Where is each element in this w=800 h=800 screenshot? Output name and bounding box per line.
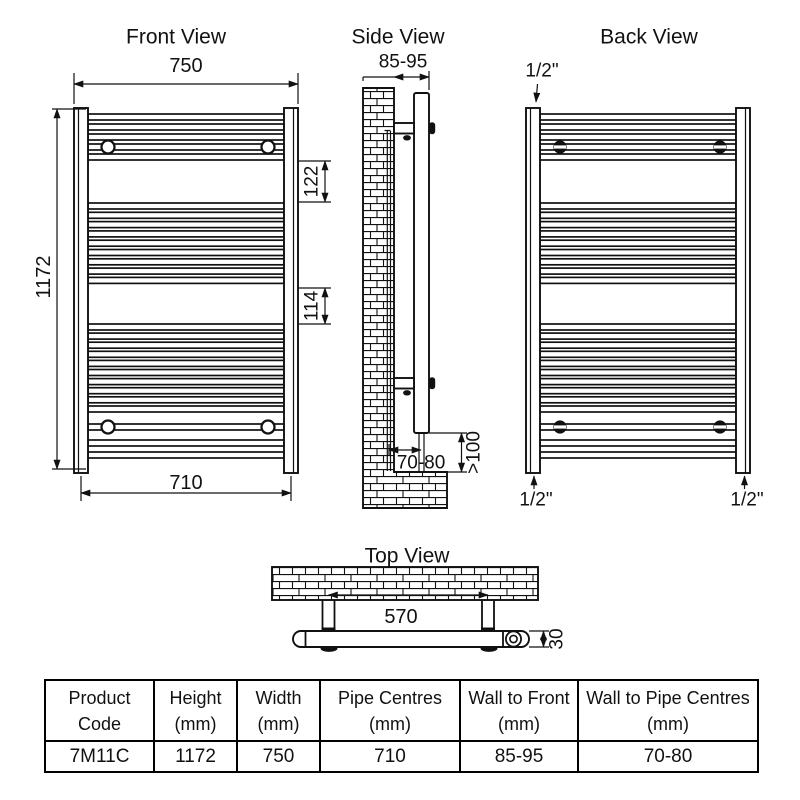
front-radiator-body [74, 108, 298, 473]
back-connection-bottom-right-label: 1/2" [730, 490, 763, 511]
cell-pipe-centres: 710 [320, 741, 460, 772]
technical-drawing-page: Front View 750 1172 122 114 7 [0, 0, 800, 800]
back-connection-bottom-left: 1/2" [519, 476, 552, 511]
spec-table: ProductCode Height(mm) Width(mm) Pipe Ce… [44, 679, 759, 773]
side-radiator-profile [414, 93, 429, 433]
header-width: Width(mm) [237, 680, 320, 741]
header-product-code: ProductCode [45, 680, 154, 741]
spec-table-header-row: ProductCode Height(mm) Width(mm) Pipe Ce… [45, 680, 758, 741]
bracket-centres-label: 570 [384, 606, 417, 628]
spec-table-data-row: 7M11C 1172 750 710 85-95 70-80 [45, 741, 758, 772]
top-view: Top View 570 30 [272, 545, 568, 652]
header-pipe-centres: Pipe Centres(mm) [320, 680, 460, 741]
back-radiator-body [526, 108, 750, 473]
front-upper-gap-label: 122 [302, 166, 323, 198]
radiator-drawing: Front View 750 1172 122 114 7 [0, 0, 800, 676]
front-upper-gap-dimension: 122 [298, 161, 331, 202]
front-view: Front View 750 1172 122 114 7 [33, 26, 331, 502]
top-radiator-tube [293, 631, 529, 647]
back-connection-top-left-label: 1/2" [525, 61, 558, 82]
back-view: Back View 1/2" 1/2" 1/2" [519, 26, 763, 511]
front-pipe-centres-label: 710 [169, 472, 202, 494]
cell-wall-to-front: 85-95 [460, 741, 578, 772]
cell-height: 1172 [154, 741, 237, 772]
back-connection-top-left: 1/2" [525, 61, 558, 103]
front-height-label: 1172 [33, 255, 55, 298]
cell-wall-to-pipe-centres: 70-80 [578, 741, 758, 772]
side-view: Side View 85-95 70-80 >100 [351, 26, 484, 509]
cell-width: 750 [237, 741, 320, 772]
front-width-label: 750 [169, 55, 202, 77]
top-view-title: Top View [365, 545, 451, 568]
back-connection-bottom-right: 1/2" [730, 476, 763, 511]
tube-depth-dimension: 30 [529, 628, 568, 649]
front-mount-hole [262, 141, 275, 154]
front-pipe-centres-dimension: 710 [81, 472, 291, 501]
header-height: Height(mm) [154, 680, 237, 741]
front-width-dimension: 750 [74, 55, 298, 104]
front-mount-hole [262, 421, 275, 434]
header-wall-to-pipe-centres: Wall to Pipe Centres(mm) [578, 680, 758, 741]
front-view-title: Front View [126, 26, 227, 49]
front-middle-gap-label: 114 [302, 290, 323, 321]
front-mount-hole [102, 421, 115, 434]
air-vent-plug-center [510, 635, 517, 642]
floor-clearance-label: >100 [464, 431, 485, 474]
wall-to-front-dimension: 85-95 [363, 52, 429, 91]
tube-depth-label: 30 [547, 628, 568, 649]
back-connection-bottom-left-label: 1/2" [519, 490, 552, 511]
front-mount-hole [102, 141, 115, 154]
wall-to-front-label: 85-95 [379, 52, 428, 73]
side-view-title: Side View [351, 26, 445, 49]
front-middle-gap-dimension: 114 [298, 288, 331, 324]
wall-and-floor-section [363, 88, 447, 508]
header-wall-to-front: Wall to Front(mm) [460, 680, 578, 741]
wall-to-pipe-dimension: 70-80 [389, 444, 445, 474]
wall-to-pipe-label: 70-80 [397, 453, 446, 474]
back-view-title: Back View [600, 26, 698, 49]
cell-product-code: 7M11C [45, 741, 154, 772]
